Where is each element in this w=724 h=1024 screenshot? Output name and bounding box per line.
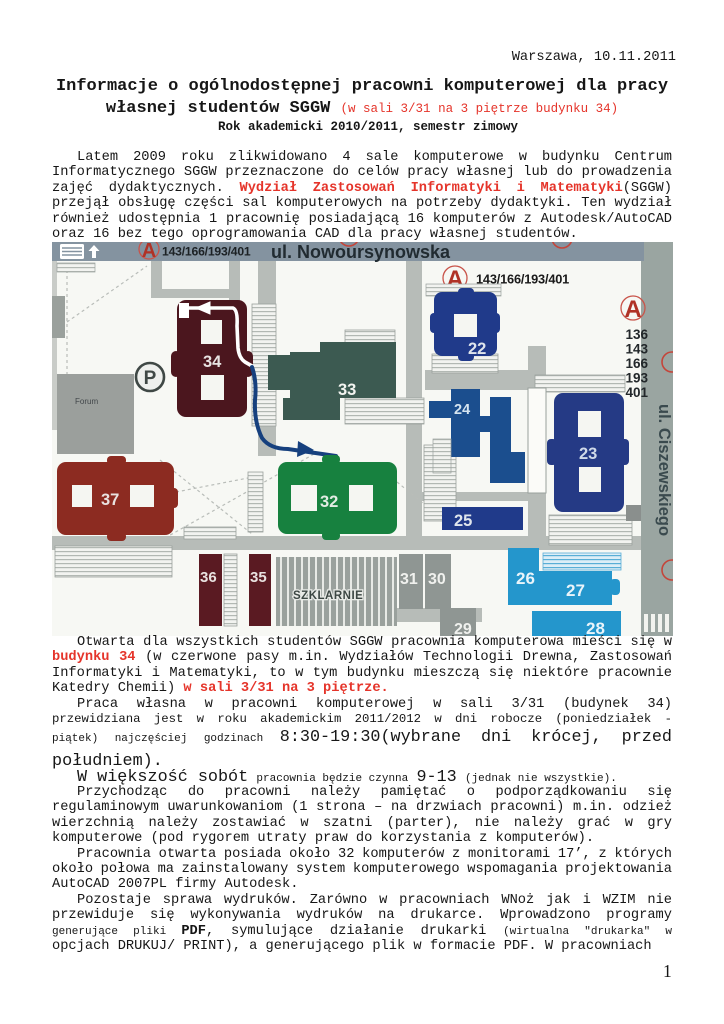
svg-text:31: 31: [400, 571, 418, 588]
svg-text:37: 37: [101, 491, 119, 509]
svg-text:193: 193: [625, 371, 648, 386]
svg-text:A: A: [624, 296, 641, 323]
svg-text:28: 28: [586, 619, 605, 636]
svg-text:23: 23: [579, 445, 597, 463]
svg-text:35: 35: [250, 569, 267, 586]
svg-text:32: 32: [320, 493, 338, 511]
svg-text:SZKLARNIE: SZKLARNIE: [293, 590, 363, 602]
svg-text:ul. Nowoursynowska: ul. Nowoursynowska: [271, 242, 451, 262]
svg-text:36: 36: [200, 569, 217, 586]
svg-text:143/166/193/401: 143/166/193/401: [162, 245, 251, 259]
svg-text:143: 143: [625, 342, 648, 357]
svg-text:33: 33: [338, 381, 356, 399]
svg-text:Forum: Forum: [75, 397, 98, 406]
svg-text:136: 136: [625, 327, 648, 342]
svg-text:24: 24: [454, 402, 470, 418]
svg-text:29: 29: [454, 621, 472, 636]
svg-text:34: 34: [203, 353, 222, 371]
svg-text:26: 26: [516, 569, 535, 588]
svg-text:25: 25: [454, 512, 472, 530]
svg-text:A: A: [142, 242, 156, 262]
svg-text:P: P: [144, 368, 157, 389]
svg-text:30: 30: [428, 571, 446, 588]
svg-text:401: 401: [625, 385, 648, 400]
svg-text:27: 27: [566, 581, 585, 600]
svg-text:166: 166: [625, 356, 648, 371]
svg-text:ul. Ciszewskiego: ul. Ciszewskiego: [655, 404, 673, 536]
svg-text:22: 22: [468, 340, 486, 358]
